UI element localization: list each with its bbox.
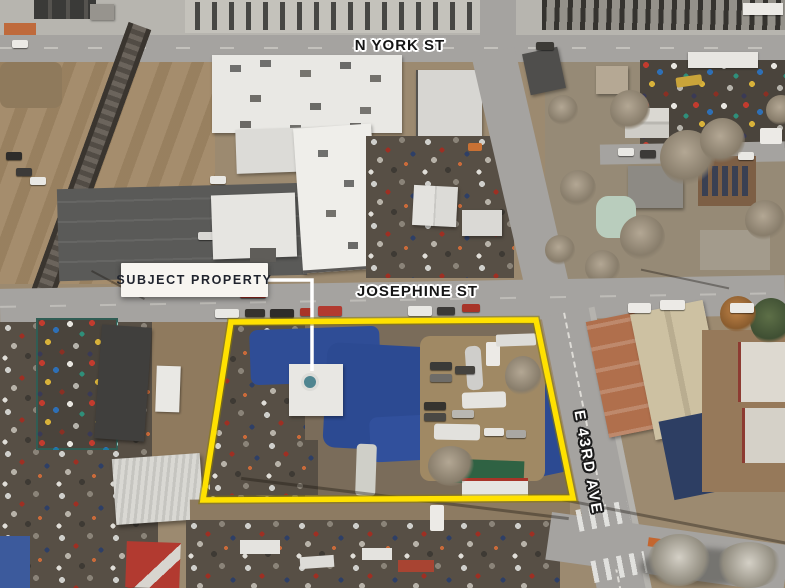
subject-property-callout: SUBJECT PROPERTY: [121, 263, 268, 297]
street-label-n-york: N YORK ST: [330, 37, 470, 54]
street-label-josephine: JOSEPHINE ST: [340, 283, 495, 300]
property-boundary: [203, 320, 573, 500]
aerial-photo: N YORK ST JOSEPHINE ST E 43RD AVE SUBJEC…: [0, 0, 785, 588]
property-boundary-edge: [203, 320, 573, 500]
